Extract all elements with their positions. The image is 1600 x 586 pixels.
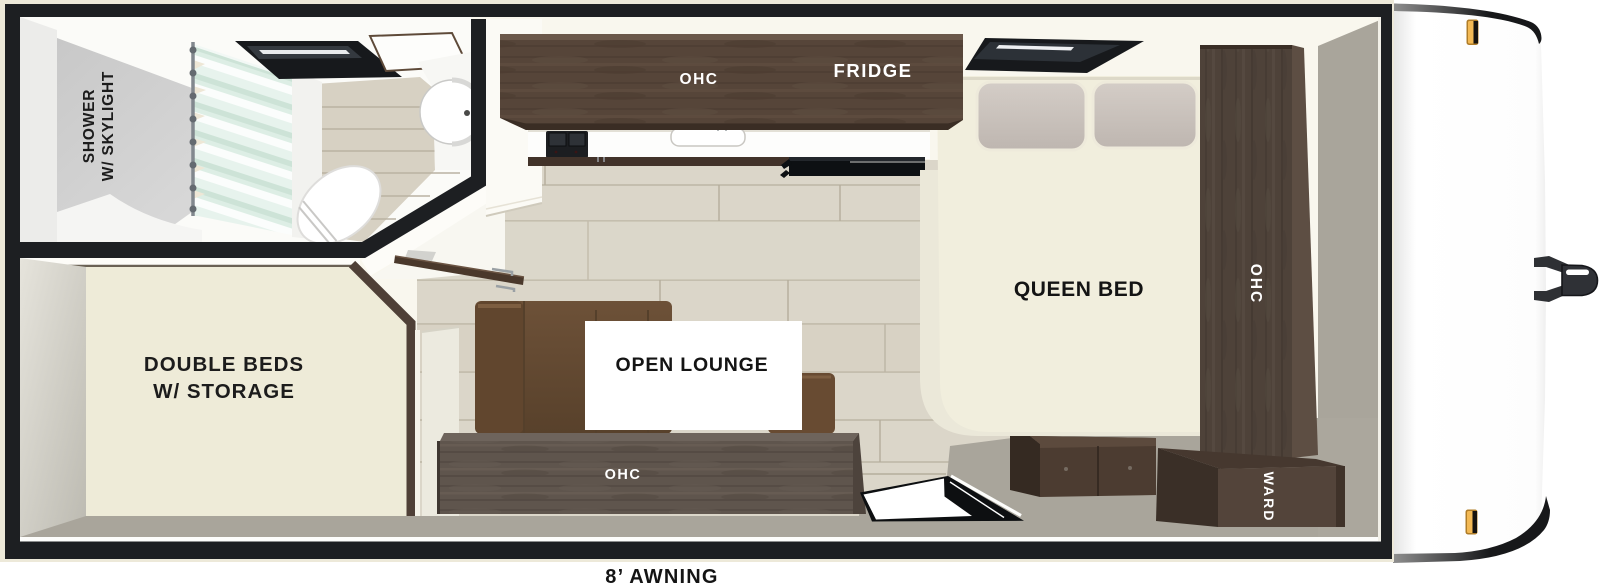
svg-text:OHC: OHC bbox=[680, 71, 719, 88]
svg-text:SHOWER: SHOWER bbox=[81, 89, 98, 164]
svg-text:OHC: OHC bbox=[1247, 264, 1264, 304]
svg-text:OPEN LOUNGE: OPEN LOUNGE bbox=[616, 354, 769, 376]
svg-text:8’ AWNING: 8’ AWNING bbox=[605, 566, 718, 586]
svg-text:WARD: WARD bbox=[1261, 472, 1277, 523]
svg-text:QUEEN BED: QUEEN BED bbox=[1014, 278, 1144, 301]
svg-text:W/ SKYLIGHT: W/ SKYLIGHT bbox=[100, 71, 117, 181]
svg-text:W/ STORAGE: W/ STORAGE bbox=[153, 380, 295, 403]
svg-text:DOUBLE BEDS: DOUBLE BEDS bbox=[144, 353, 304, 376]
svg-text:OHC: OHC bbox=[605, 467, 642, 483]
svg-text:FRIDGE: FRIDGE bbox=[834, 60, 913, 81]
